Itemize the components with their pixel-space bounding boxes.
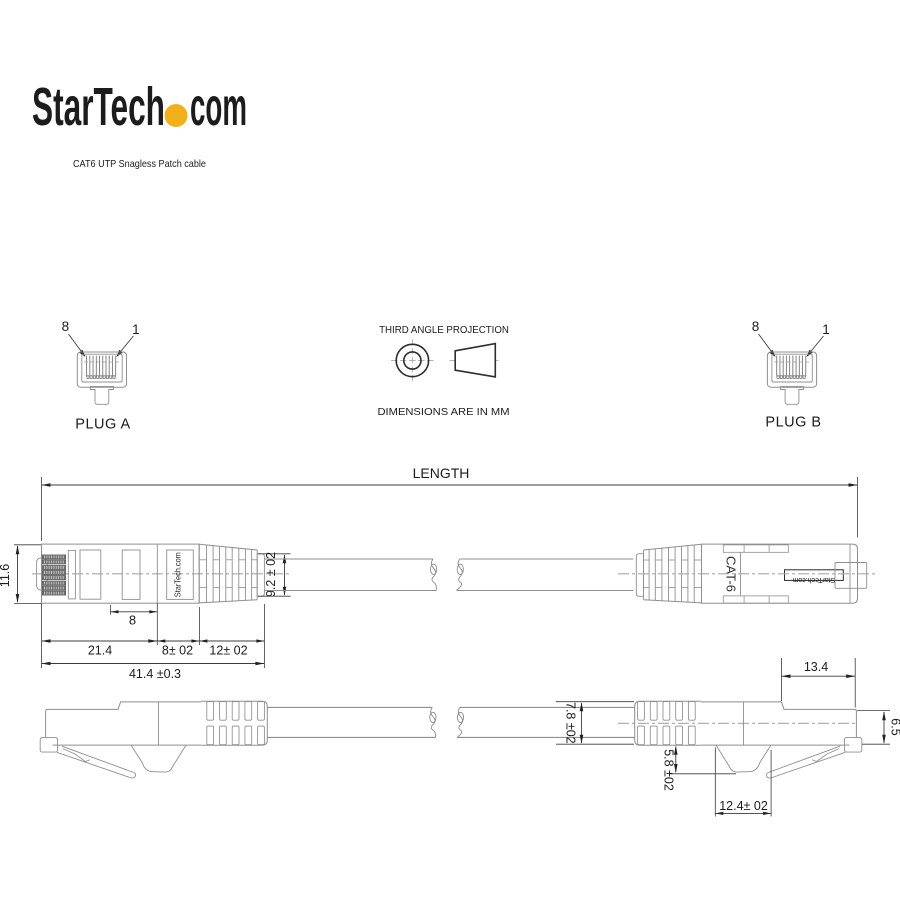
svg-text:LENGTH: LENGTH — [413, 465, 470, 481]
svg-text:StarTech: StarTech — [32, 77, 165, 137]
svg-text:12.4± 02: 12.4± 02 — [719, 799, 768, 813]
svg-text:5.8 ±02: 5.8 ±02 — [662, 749, 676, 791]
svg-text:8± 02: 8± 02 — [162, 644, 193, 658]
svg-text:8: 8 — [752, 319, 760, 334]
svg-text:8: 8 — [62, 319, 70, 334]
svg-text:41.4 ±0.3: 41.4 ±0.3 — [129, 667, 181, 681]
svg-text:PLUG A: PLUG A — [75, 417, 130, 433]
svg-text:1: 1 — [822, 322, 830, 337]
svg-text:7.8 ±02: 7.8 ±02 — [564, 702, 578, 744]
svg-text:StarTech.com: StarTech.com — [792, 576, 835, 583]
svg-text:com: com — [190, 77, 247, 137]
svg-text:6.5: 6.5 — [889, 718, 900, 735]
svg-text:THIRD ANGLE PROJECTION: THIRD ANGLE PROJECTION — [379, 325, 509, 336]
svg-text:8: 8 — [129, 613, 136, 628]
svg-text:12± 02: 12± 02 — [209, 644, 247, 658]
svg-text:13.4: 13.4 — [804, 660, 828, 674]
svg-text:11.6: 11.6 — [0, 564, 12, 587]
svg-text:CAT6 UTP Snagless Patch cable: CAT6 UTP Snagless Patch cable — [73, 159, 206, 170]
svg-text:PLUG B: PLUG B — [765, 415, 821, 431]
svg-text:1: 1 — [132, 322, 140, 337]
svg-text:21.4: 21.4 — [88, 644, 112, 658]
svg-text:StarTech.com: StarTech.com — [173, 552, 183, 597]
svg-text:DIMENSIONS ARE IN MM: DIMENSIONS ARE IN MM — [378, 407, 510, 418]
